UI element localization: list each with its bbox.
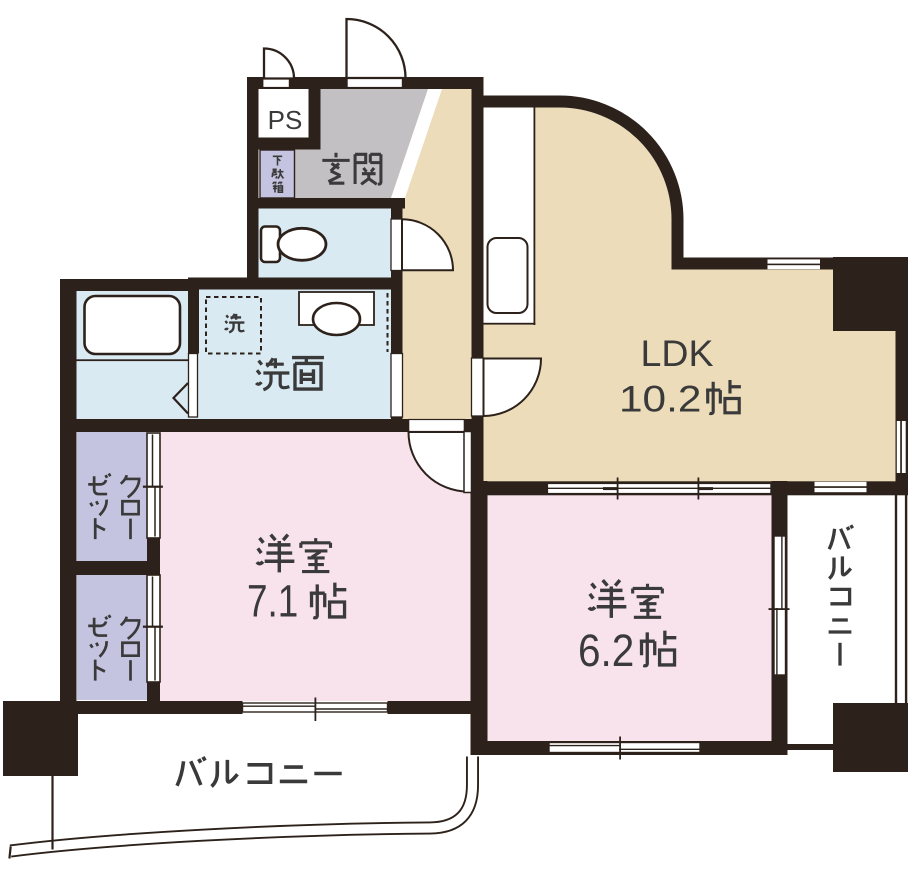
svg-text:7.1: 7.1 [247,576,298,626]
svg-text:LDK: LDK [641,332,714,374]
svg-text:10.2: 10.2 [619,379,701,420]
svg-text:6.2: 6.2 [578,626,634,676]
svg-text:PS: PS [268,105,303,135]
